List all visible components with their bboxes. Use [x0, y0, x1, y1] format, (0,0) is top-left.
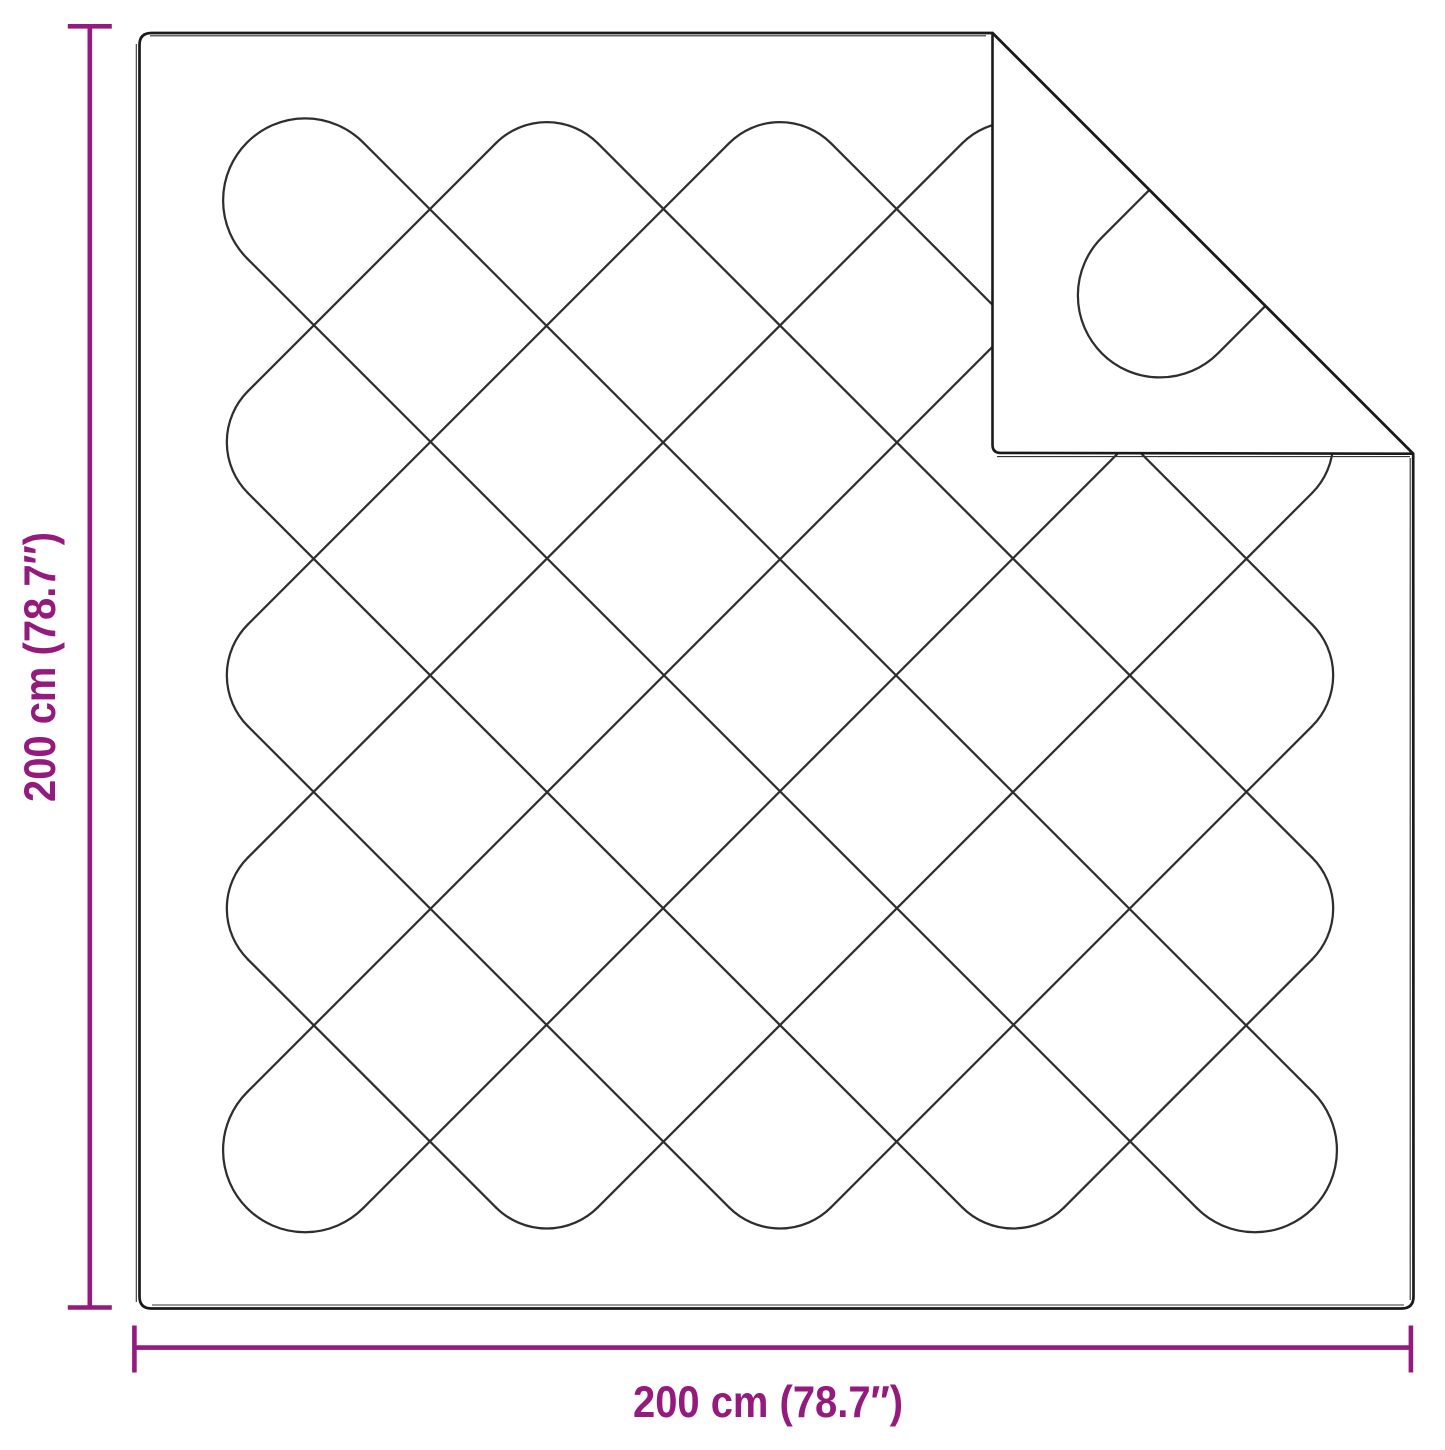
svg-text:200 cm (78.7″): 200 cm (78.7″) [16, 532, 65, 802]
svg-text:200 cm (78.7″): 200 cm (78.7″) [633, 1378, 903, 1427]
